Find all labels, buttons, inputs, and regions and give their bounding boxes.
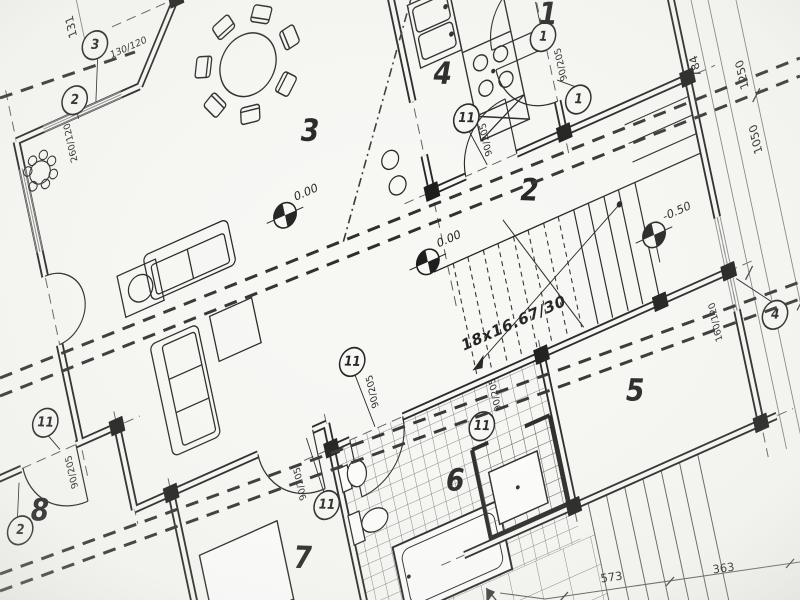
floor-plan-canvas: 3 130/120 2 260/120 4 160/120 11 90/205 … xyxy=(0,0,800,600)
svg-text:11: 11 xyxy=(343,354,362,370)
blueprint-page: 3 130/120 2 260/120 4 160/120 11 90/205 … xyxy=(0,0,800,600)
svg-text:11: 11 xyxy=(472,418,491,434)
svg-text:11: 11 xyxy=(36,415,55,431)
svg-text:11: 11 xyxy=(317,497,336,513)
svg-text:11: 11 xyxy=(457,110,476,126)
